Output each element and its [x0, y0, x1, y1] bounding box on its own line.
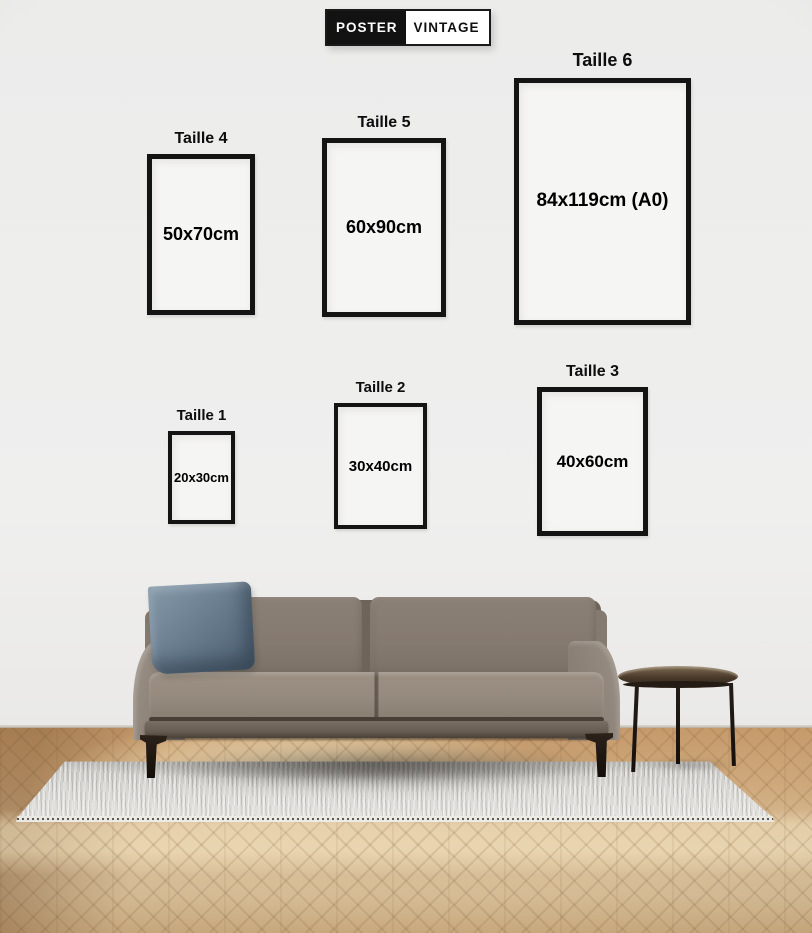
- frame-dimensions: 40x60cm: [557, 452, 629, 472]
- logo-vintage-text: VINTAGE: [406, 11, 489, 44]
- frame-title: Taille 4: [147, 129, 255, 148]
- poster-frame: 50x70cm: [147, 154, 255, 315]
- side-table: [618, 662, 740, 770]
- sofa-leg-front-right: [585, 733, 613, 777]
- poster-frame: 30x40cm: [334, 403, 427, 529]
- poster-frame: 60x90cm: [322, 138, 446, 317]
- table-leg-left: [631, 684, 639, 772]
- sofa-base: [145, 721, 608, 738]
- table-rim: [623, 681, 733, 688]
- sofa-back-cushion-right: [370, 597, 596, 681]
- size-frame-taille-4: Taille 4 50x70cm: [147, 129, 255, 315]
- poster-size-guide-scene: POSTER VINTAGE Taille 4 50x70cm Taille 5…: [0, 0, 812, 933]
- size-frame-taille-3: Taille 3 40x60cm: [537, 362, 648, 536]
- frame-title: Taille 1: [168, 407, 235, 425]
- logo-poster-text: POSTER: [327, 11, 406, 44]
- sofa-leg-front-left: [140, 735, 167, 778]
- sofa-seat-cushions: [149, 672, 604, 720]
- table-leg-right: [729, 683, 736, 766]
- frame-title: Taille 3: [537, 362, 648, 381]
- frame-dimensions: 50x70cm: [163, 224, 239, 245]
- rug-fringe: [16, 816, 774, 822]
- poster-vintage-logo: POSTER VINTAGE: [325, 9, 491, 46]
- poster-frame: 84x119cm (A0): [514, 78, 691, 325]
- frame-title: Taille 5: [322, 113, 446, 132]
- poster-frame: 20x30cm: [168, 431, 235, 524]
- frame-dimensions: 20x30cm: [174, 470, 229, 485]
- poster-frame: 40x60cm: [537, 387, 648, 536]
- frame-dimensions: 84x119cm (A0): [536, 190, 668, 212]
- frame-dimensions: 60x90cm: [346, 217, 422, 238]
- size-frame-taille-5: Taille 5 60x90cm: [322, 113, 446, 317]
- frame-title: Taille 6: [514, 50, 691, 72]
- size-frame-taille-2: Taille 2 30x40cm: [334, 379, 427, 529]
- table-leg-middle: [676, 688, 680, 764]
- size-frame-taille-6: Taille 6 84x119cm (A0): [514, 50, 691, 325]
- frame-dimensions: 30x40cm: [349, 458, 412, 475]
- frame-title: Taille 2: [334, 379, 427, 397]
- throw-pillow: [148, 581, 255, 674]
- size-frame-taille-1: Taille 1 20x30cm: [168, 407, 235, 524]
